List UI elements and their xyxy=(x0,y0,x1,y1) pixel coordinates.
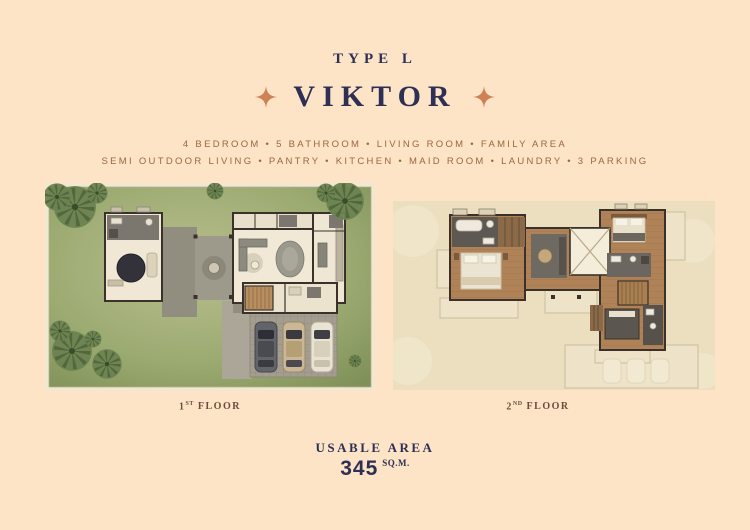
four-point-star-icon xyxy=(473,86,495,108)
stairs xyxy=(245,286,273,310)
stairs-2f xyxy=(618,281,648,305)
floor-ordinal-suffix: ST xyxy=(186,401,194,407)
car-dark-gray xyxy=(255,322,277,372)
first-floor-plan-svg xyxy=(45,183,375,391)
void-open-to-below xyxy=(570,228,610,275)
floor-word: FLOOR xyxy=(198,401,241,412)
ac-unit xyxy=(453,209,467,215)
type-label: TYPE L xyxy=(0,51,750,68)
villa-name-row: VIKTOR xyxy=(0,80,750,114)
car-tan xyxy=(283,322,305,372)
usable-area-label: USABLE AREA xyxy=(0,440,750,456)
bedroom-2 xyxy=(611,214,647,242)
parking-ghost xyxy=(603,359,669,383)
usable-area-value-row: 345SQ.M. xyxy=(0,457,750,481)
family-area xyxy=(531,234,567,278)
car-cream xyxy=(311,322,333,372)
ac-unit xyxy=(137,207,150,212)
ac-unit xyxy=(635,204,647,209)
first-floor-plan xyxy=(45,183,375,391)
brochure-page: TYPE L VIKTOR 4 BEDROOM • 5 BATHROOM • L… xyxy=(0,0,750,530)
bathroom-3 xyxy=(643,305,663,345)
villa-name: VIKTOR xyxy=(293,80,456,114)
walk-in-closet xyxy=(498,217,525,247)
dining-area xyxy=(276,241,304,277)
first-floor-label: 1STFLOOR xyxy=(45,401,375,412)
ac-unit xyxy=(615,204,627,209)
second-floor-plan-svg xyxy=(393,201,715,390)
features-line-2: SEMI OUTDOOR LIVING • PANTRY • KITCHEN •… xyxy=(0,156,750,167)
features-line-1: 4 BEDROOM • 5 BATHROOM • LIVING ROOM • F… xyxy=(0,139,750,150)
roof-post xyxy=(577,295,581,299)
master-bathroom-2f xyxy=(452,217,498,247)
area-value: 345 xyxy=(340,457,378,480)
floor-ordinal-suffix: ND xyxy=(513,401,523,407)
master-bed xyxy=(454,253,508,289)
second-floor-label: 2NDFLOOR xyxy=(400,401,676,412)
four-point-star-icon xyxy=(255,86,277,108)
area-unit: SQ.M. xyxy=(382,458,410,468)
second-floor-plan xyxy=(393,201,715,390)
ac-unit xyxy=(111,207,122,212)
master-bathroom xyxy=(107,215,159,240)
bathroom-2 xyxy=(607,253,651,277)
floor-word: FLOOR xyxy=(527,401,570,412)
roof-post xyxy=(551,295,555,299)
ac-unit xyxy=(479,209,495,215)
